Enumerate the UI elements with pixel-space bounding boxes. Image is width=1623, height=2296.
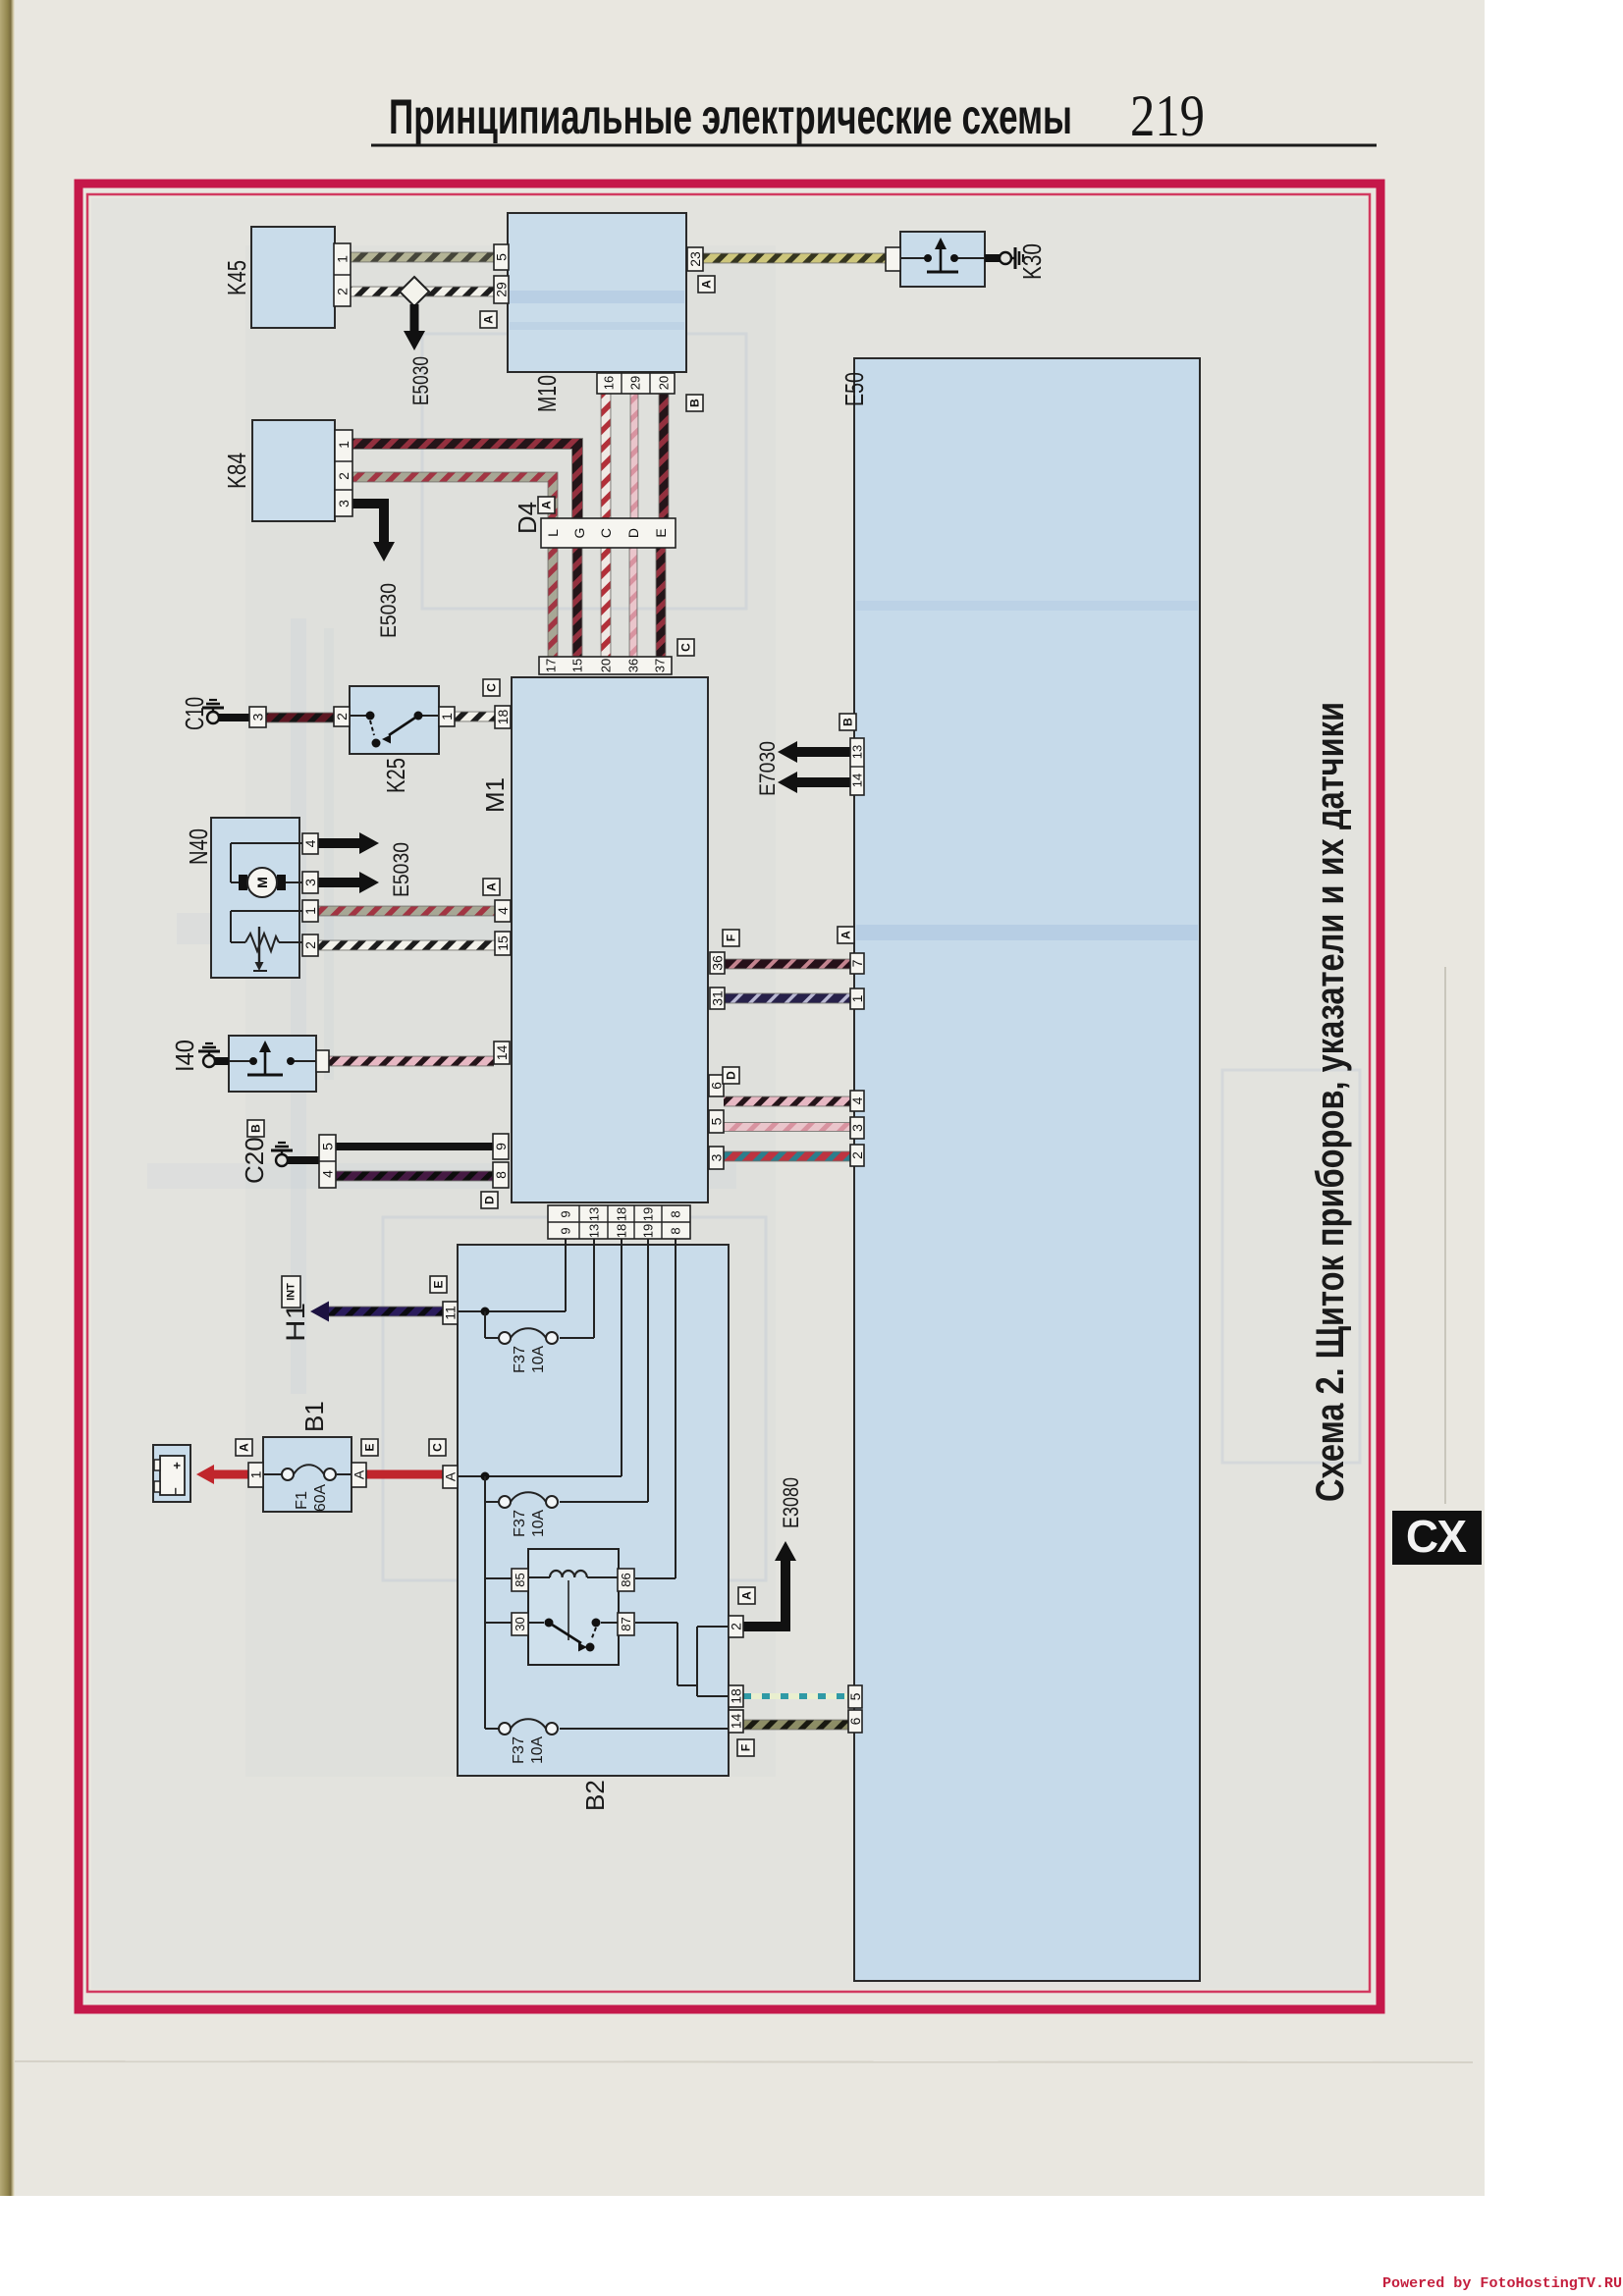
svg-text:A: A (740, 1591, 754, 1600)
svg-text:K30: K30 (1017, 243, 1047, 280)
svg-text:INT: INT (286, 1283, 298, 1301)
svg-text:3: 3 (849, 1124, 865, 1132)
svg-text:D: D (483, 1196, 497, 1204)
svg-text:37: 37 (653, 659, 668, 672)
svg-text:8: 8 (493, 1171, 509, 1179)
svg-text:20: 20 (657, 376, 672, 390)
svg-text:30: 30 (513, 1617, 527, 1630)
svg-text:D: D (725, 1071, 738, 1080)
svg-text:3: 3 (302, 879, 318, 886)
svg-text:A: A (352, 1469, 367, 1479)
svg-text:F37: F37 (512, 1346, 528, 1373)
svg-text:1: 1 (336, 441, 352, 449)
svg-text:1: 1 (439, 713, 455, 721)
svg-text:5: 5 (709, 1117, 725, 1125)
svg-text:31: 31 (710, 990, 726, 1006)
svg-text:5: 5 (320, 1143, 336, 1150)
svg-text:4: 4 (849, 1096, 865, 1104)
svg-text:C20: C20 (240, 1137, 269, 1184)
svg-text:B: B (249, 1124, 263, 1133)
svg-text:L: L (545, 529, 561, 537)
svg-text:2: 2 (849, 1151, 865, 1159)
svg-text:6: 6 (847, 1717, 863, 1725)
svg-text:6: 6 (709, 1082, 725, 1090)
svg-text:7: 7 (849, 959, 865, 967)
svg-text:E5030: E5030 (408, 356, 433, 405)
svg-text:E7030: E7030 (755, 741, 780, 796)
svg-text:36: 36 (710, 955, 726, 971)
svg-text:8: 8 (669, 1210, 683, 1217)
svg-text:N40: N40 (184, 828, 213, 865)
svg-text:13: 13 (850, 745, 865, 759)
svg-text:29: 29 (628, 376, 643, 390)
svg-text:5: 5 (847, 1692, 863, 1700)
svg-text:2: 2 (302, 941, 318, 949)
svg-text:3: 3 (709, 1153, 725, 1161)
svg-text:E: E (432, 1280, 446, 1288)
svg-text:29: 29 (494, 282, 510, 297)
svg-text:15: 15 (570, 659, 585, 672)
svg-text:E50: E50 (839, 372, 869, 406)
svg-text:K45: K45 (222, 260, 251, 295)
svg-text:1: 1 (849, 994, 865, 1002)
svg-text:9: 9 (493, 1143, 509, 1150)
svg-text:19: 19 (641, 1207, 656, 1221)
svg-text:13: 13 (587, 1207, 602, 1221)
svg-text:1: 1 (335, 255, 351, 263)
svg-text:G: G (571, 528, 587, 539)
svg-text:E: E (363, 1443, 377, 1451)
svg-text:14: 14 (850, 774, 865, 787)
svg-text:F37: F37 (511, 1736, 527, 1764)
svg-text:19: 19 (641, 1224, 656, 1238)
svg-text:D: D (625, 528, 641, 538)
svg-text:2: 2 (334, 713, 350, 721)
svg-text:36: 36 (626, 659, 641, 672)
svg-text:60A: 60A (312, 1484, 329, 1512)
svg-text:C: C (485, 683, 499, 692)
svg-text:11: 11 (443, 1306, 459, 1320)
svg-text:E5030: E5030 (376, 583, 401, 638)
svg-text:10A: 10A (530, 1346, 547, 1373)
svg-text:10A: 10A (529, 1736, 546, 1764)
svg-text:2: 2 (335, 288, 351, 295)
svg-text:I40: I40 (170, 1040, 199, 1072)
svg-text:5: 5 (494, 253, 510, 261)
svg-text:20: 20 (599, 659, 614, 672)
svg-text:K25: K25 (381, 758, 410, 793)
svg-text:C10: C10 (180, 697, 209, 730)
svg-text:87: 87 (619, 1617, 633, 1630)
svg-text:Принципиальные электрические с: Принципиальные электрические схемы (389, 89, 1072, 144)
svg-text:14: 14 (494, 1045, 510, 1061)
svg-text:СХ: СХ (1406, 1511, 1467, 1562)
svg-text:E3080: E3080 (779, 1477, 803, 1528)
svg-text:M: M (254, 877, 270, 888)
svg-text:A: A (540, 501, 554, 509)
svg-text:18: 18 (729, 1688, 744, 1704)
svg-text:219: 219 (1130, 83, 1205, 148)
svg-text:4: 4 (495, 907, 511, 915)
svg-text:A: A (700, 280, 714, 289)
svg-text:9: 9 (559, 1210, 573, 1217)
svg-text:4: 4 (320, 1170, 336, 1178)
svg-text:2: 2 (336, 472, 352, 480)
svg-text:C: C (431, 1443, 445, 1452)
svg-text:17: 17 (544, 659, 559, 672)
svg-text:K84: K84 (222, 453, 251, 489)
svg-text:2: 2 (729, 1623, 744, 1630)
svg-text:10A: 10A (530, 1510, 547, 1537)
svg-text:B: B (688, 399, 702, 407)
svg-text:+: + (170, 1462, 185, 1469)
svg-text:18: 18 (615, 1207, 629, 1221)
svg-text:F: F (725, 934, 738, 941)
svg-text:Схема 2. Щиток приборов, указа: Схема 2. Щиток приборов, указатели и их … (1309, 702, 1352, 1502)
svg-text:1: 1 (302, 907, 318, 915)
svg-text:1: 1 (248, 1470, 264, 1478)
svg-text:14: 14 (729, 1714, 744, 1730)
svg-text:B: B (841, 718, 855, 726)
svg-text:F: F (739, 1744, 753, 1751)
svg-text:3: 3 (336, 500, 352, 507)
svg-text:E5030: E5030 (389, 842, 413, 897)
svg-text:A: A (485, 882, 499, 891)
svg-text:M10: M10 (532, 375, 562, 412)
svg-text:H1: H1 (281, 1303, 310, 1342)
svg-text:C: C (679, 643, 693, 652)
svg-text:A: A (839, 931, 853, 939)
svg-text:18: 18 (615, 1224, 629, 1238)
svg-text:13: 13 (587, 1224, 602, 1238)
svg-text:9: 9 (559, 1227, 573, 1234)
svg-text:E: E (653, 528, 669, 537)
svg-text:4: 4 (302, 839, 318, 847)
svg-text:8: 8 (669, 1227, 683, 1234)
svg-text:C: C (598, 528, 614, 538)
svg-text:86: 86 (619, 1573, 633, 1586)
svg-text:A: A (238, 1443, 251, 1452)
svg-text:F37: F37 (512, 1510, 528, 1537)
svg-text:18: 18 (495, 710, 511, 725)
svg-text:16: 16 (602, 376, 617, 390)
svg-text:Powered by FotoHostingTV.RU: Powered by FotoHostingTV.RU (1382, 2275, 1622, 2292)
svg-text:B1: B1 (299, 1401, 329, 1432)
svg-text:3: 3 (250, 713, 266, 721)
svg-text:F1: F1 (294, 1491, 310, 1510)
svg-text:B2: B2 (580, 1780, 610, 1811)
svg-text:23: 23 (687, 251, 703, 267)
svg-text:15: 15 (495, 935, 511, 951)
svg-text:M1: M1 (480, 777, 510, 813)
svg-text:A: A (443, 1471, 459, 1481)
svg-text:–: – (168, 1487, 183, 1494)
svg-text:A: A (482, 315, 496, 324)
svg-text:85: 85 (513, 1573, 527, 1586)
